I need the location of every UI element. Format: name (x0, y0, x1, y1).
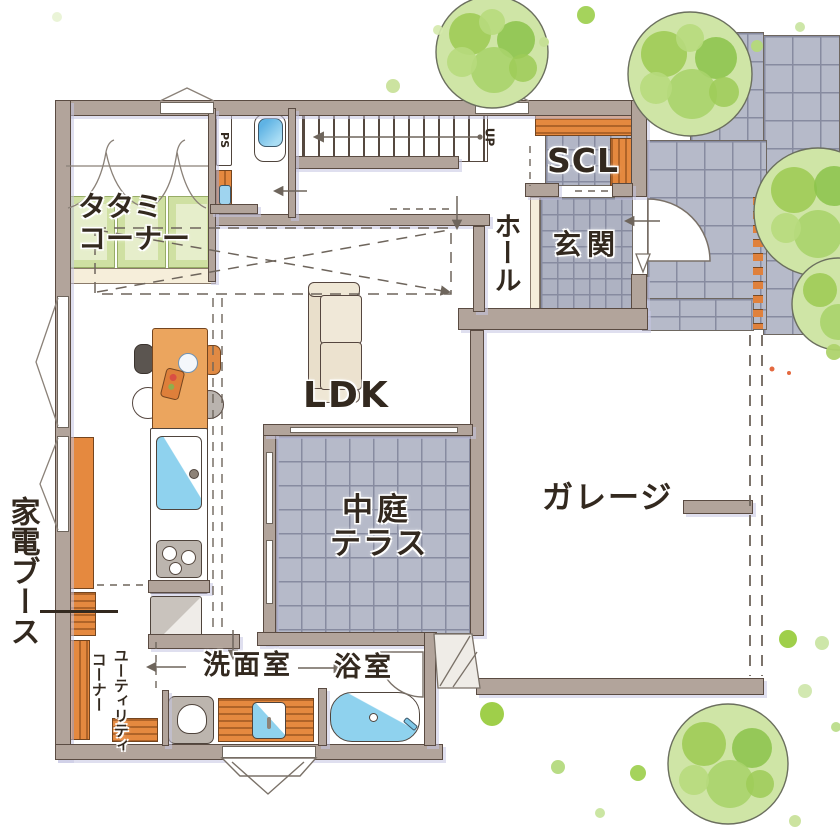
wall-scl-stub-west (525, 183, 559, 197)
tray-dish (169, 373, 177, 381)
burner (169, 562, 182, 575)
bathtub-drain (369, 713, 378, 722)
burner (181, 550, 196, 565)
wall-kitchen-end (148, 580, 210, 593)
washing-machine (168, 696, 214, 744)
burner (162, 546, 177, 561)
wall-garage-south (476, 678, 764, 695)
window-bay-south (222, 746, 316, 758)
toilet (254, 114, 286, 162)
floor-plan: タタミ コーナー SCL ホール 玄関 LDK 中庭 テラス ガレージ 家電ブー… (0, 0, 840, 840)
label-leader-line (40, 610, 118, 613)
wall-right-upper (631, 100, 647, 197)
room-label-courtyard-line2: テラス (330, 528, 428, 561)
window-courtyard-west-1 (266, 452, 273, 524)
wall-left (55, 100, 71, 760)
tray-dish (168, 383, 175, 390)
wall-bath-east (424, 632, 436, 746)
refrigerator (150, 596, 202, 638)
room-label-entrance: 玄関 (553, 230, 621, 259)
room-label-scl: SCL (547, 144, 619, 179)
garden-fence (753, 197, 763, 329)
vanity-sink (252, 702, 286, 739)
room-label-ldk: LDK (303, 377, 390, 415)
wall-garage-west (470, 330, 484, 636)
brick-paving (642, 298, 754, 331)
wall-top (55, 100, 647, 116)
window-courtyard-west-2 (266, 540, 273, 604)
tree (668, 704, 788, 824)
wall-under-stairs (293, 156, 459, 169)
room-label-hall: ホール (490, 212, 518, 293)
staircase (302, 112, 488, 162)
window-left-lower (57, 436, 69, 532)
approach-paving-right (763, 35, 840, 335)
approach-paving-top (690, 32, 764, 142)
wall-courtyard-south (257, 632, 437, 646)
toilet-seat (258, 118, 283, 147)
room-label-appliance-booth: 家電ブース (6, 496, 38, 646)
kitchen-sink (156, 436, 202, 510)
room-label-utility-line2: コーナー (90, 652, 106, 712)
wall-washer-side (162, 690, 169, 746)
table-tray (160, 367, 186, 401)
wall-hall-south (458, 308, 648, 330)
room-label-tatami-line2: コーナー (78, 224, 190, 253)
room-label-utility-line1: ユーティリティ (112, 648, 128, 753)
wall-bath-west (318, 688, 327, 746)
chair (134, 344, 154, 374)
wall-washroom-north (148, 634, 240, 649)
toilet-hand-basin (219, 185, 231, 205)
annotation-pipe-space: PS (218, 132, 230, 148)
room-label-garage: ガレージ (542, 482, 673, 515)
wall-toilet-south (210, 204, 258, 214)
wall-toilet-east (288, 108, 296, 218)
entrance-step-edge (530, 197, 540, 310)
tree (436, 0, 548, 108)
window-courtyard-north (290, 427, 458, 433)
wall-hall-west (473, 226, 485, 312)
room-label-washroom: 洗面室 (203, 652, 293, 680)
tatami-step-edge (62, 268, 216, 284)
bay-window (222, 758, 316, 794)
wall-tatami-east (208, 108, 216, 282)
sofa-cushion (320, 295, 362, 344)
stove (156, 540, 202, 578)
window-top-hall (475, 102, 529, 114)
bathtub-handle (403, 717, 418, 731)
washer-drum (177, 704, 207, 734)
annotation-up: UP (483, 128, 496, 147)
dining-table (152, 328, 208, 438)
room-label-courtyard-line1: 中庭 (342, 494, 412, 527)
wall-scl-stub-east (612, 183, 633, 197)
window-top-tatami (160, 102, 214, 114)
wall-ldk-north (210, 214, 490, 226)
room-label-tatami-line1: タタミ (78, 192, 162, 221)
window-left-upper (57, 296, 69, 428)
room-label-bathroom: 浴室 (334, 654, 394, 682)
wall-garage-stub (683, 500, 753, 514)
faucet-icon (267, 717, 271, 729)
faucet-icon (189, 469, 199, 479)
bathtub (330, 692, 420, 742)
